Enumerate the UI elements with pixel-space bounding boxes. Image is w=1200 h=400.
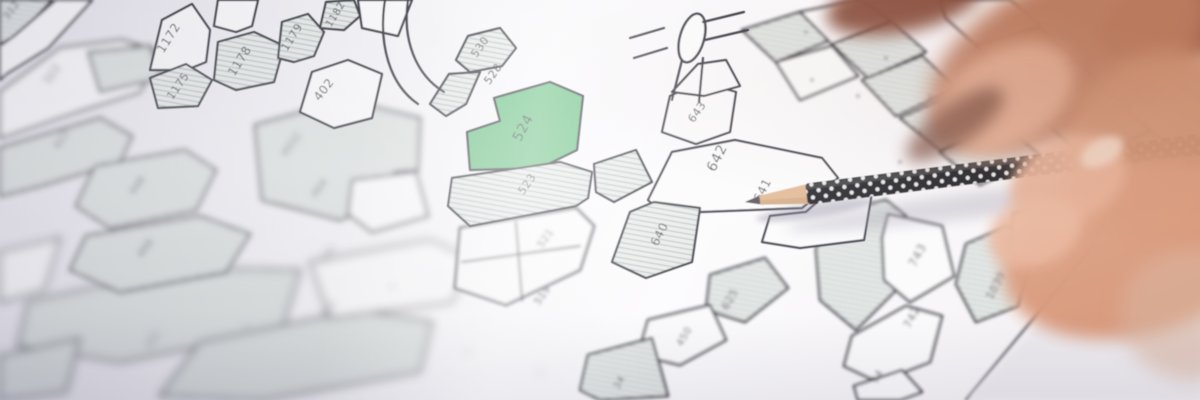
tiny-parcel-mark	[245, 325, 249, 329]
tiny-parcel-mark	[950, 160, 954, 164]
map-svg: 443454453 3224224484684032404 3126254503…	[0, 0, 1200, 400]
road-edge-line	[634, 48, 667, 58]
map-parcel	[594, 150, 652, 202]
roundabout	[674, 11, 711, 66]
map-parcel	[150, 4, 210, 70]
map-parcel	[0, 338, 80, 400]
tiny-parcel-mark	[884, 56, 888, 60]
map-parcel	[456, 28, 516, 72]
road-edge-line	[703, 12, 744, 22]
map-parcel	[580, 338, 668, 400]
cadastral-map-photo: 443454453 3224224484684032404 3126254503…	[0, 0, 1200, 400]
tiny-parcel-mark	[466, 350, 470, 354]
map-parcel	[430, 72, 480, 116]
map-parcel	[214, 0, 258, 32]
tiny-parcel-mark	[804, 30, 808, 34]
road-edge-line	[407, 0, 444, 92]
tiny-parcel-mark	[538, 370, 542, 374]
map-parcel	[214, 32, 284, 90]
tiny-parcel-mark	[856, 94, 860, 98]
map-parcel	[706, 258, 788, 322]
map-parcel	[0, 238, 60, 302]
tiny-parcel-mark	[390, 285, 394, 289]
map-parcel	[348, 172, 428, 232]
road-edge-line	[705, 30, 748, 40]
tiny-parcel-mark	[810, 78, 814, 82]
tiny-parcel-mark	[898, 160, 902, 164]
road-edge-line	[630, 28, 664, 38]
